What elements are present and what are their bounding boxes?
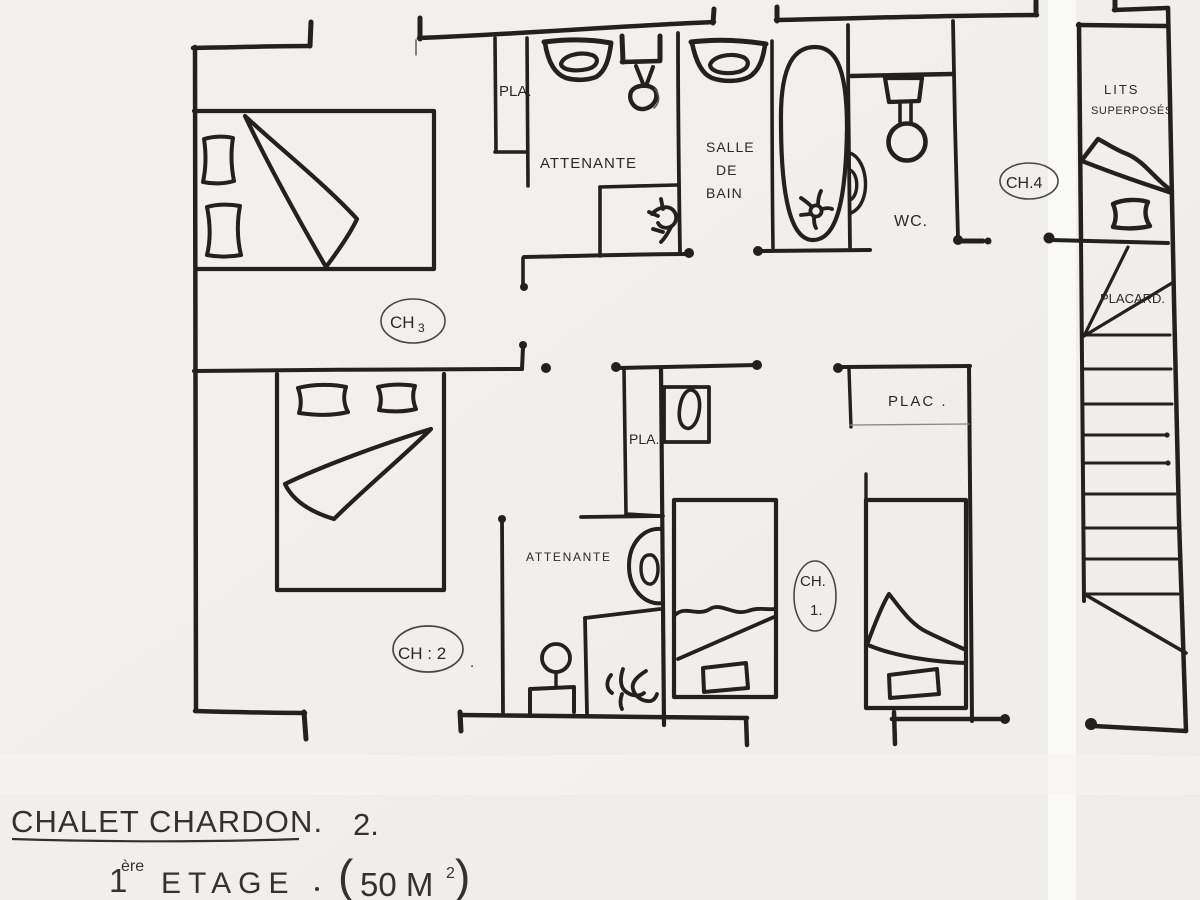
svg-text:BAIN: BAIN xyxy=(706,185,743,201)
svg-text:ATTENANTE: ATTENANTE xyxy=(540,155,637,172)
svg-text:2.: 2. xyxy=(353,807,379,842)
svg-text:PLA.: PLA. xyxy=(499,83,532,100)
svg-text:LITS: LITS xyxy=(1104,82,1139,97)
svg-text:DE: DE xyxy=(716,162,737,178)
svg-text:PLACARD.: PLACARD. xyxy=(1100,291,1165,306)
svg-text:1.: 1. xyxy=(810,602,823,619)
svg-text:CH: CH xyxy=(390,313,415,332)
svg-text:CHALET CHARDON.: CHALET CHARDON. xyxy=(11,804,323,839)
svg-text:SALLE: SALLE xyxy=(706,139,755,155)
svg-text:CH.: CH. xyxy=(800,573,826,590)
svg-text:PLAC .: PLAC . xyxy=(888,393,948,410)
svg-text:ère: ère xyxy=(121,858,144,875)
svg-text:PLA.: PLA. xyxy=(629,431,659,447)
svg-text:ATTENANTE: ATTENANTE xyxy=(526,550,612,564)
svg-text:): ) xyxy=(455,850,470,900)
svg-text:SUPERPOSÉS: SUPERPOSÉS xyxy=(1091,104,1173,117)
svg-text:ETAGE: ETAGE xyxy=(161,867,295,900)
svg-text:WC.: WC. xyxy=(894,213,928,230)
svg-text:(: ( xyxy=(338,850,354,900)
svg-text:.: . xyxy=(470,654,474,671)
svg-text:CH : 2: CH : 2 xyxy=(398,644,446,663)
svg-text:2: 2 xyxy=(446,865,455,882)
svg-text:3: 3 xyxy=(418,321,425,335)
svg-text:50 M: 50 M xyxy=(360,866,433,900)
svg-text:CH.4: CH.4 xyxy=(1006,175,1043,192)
